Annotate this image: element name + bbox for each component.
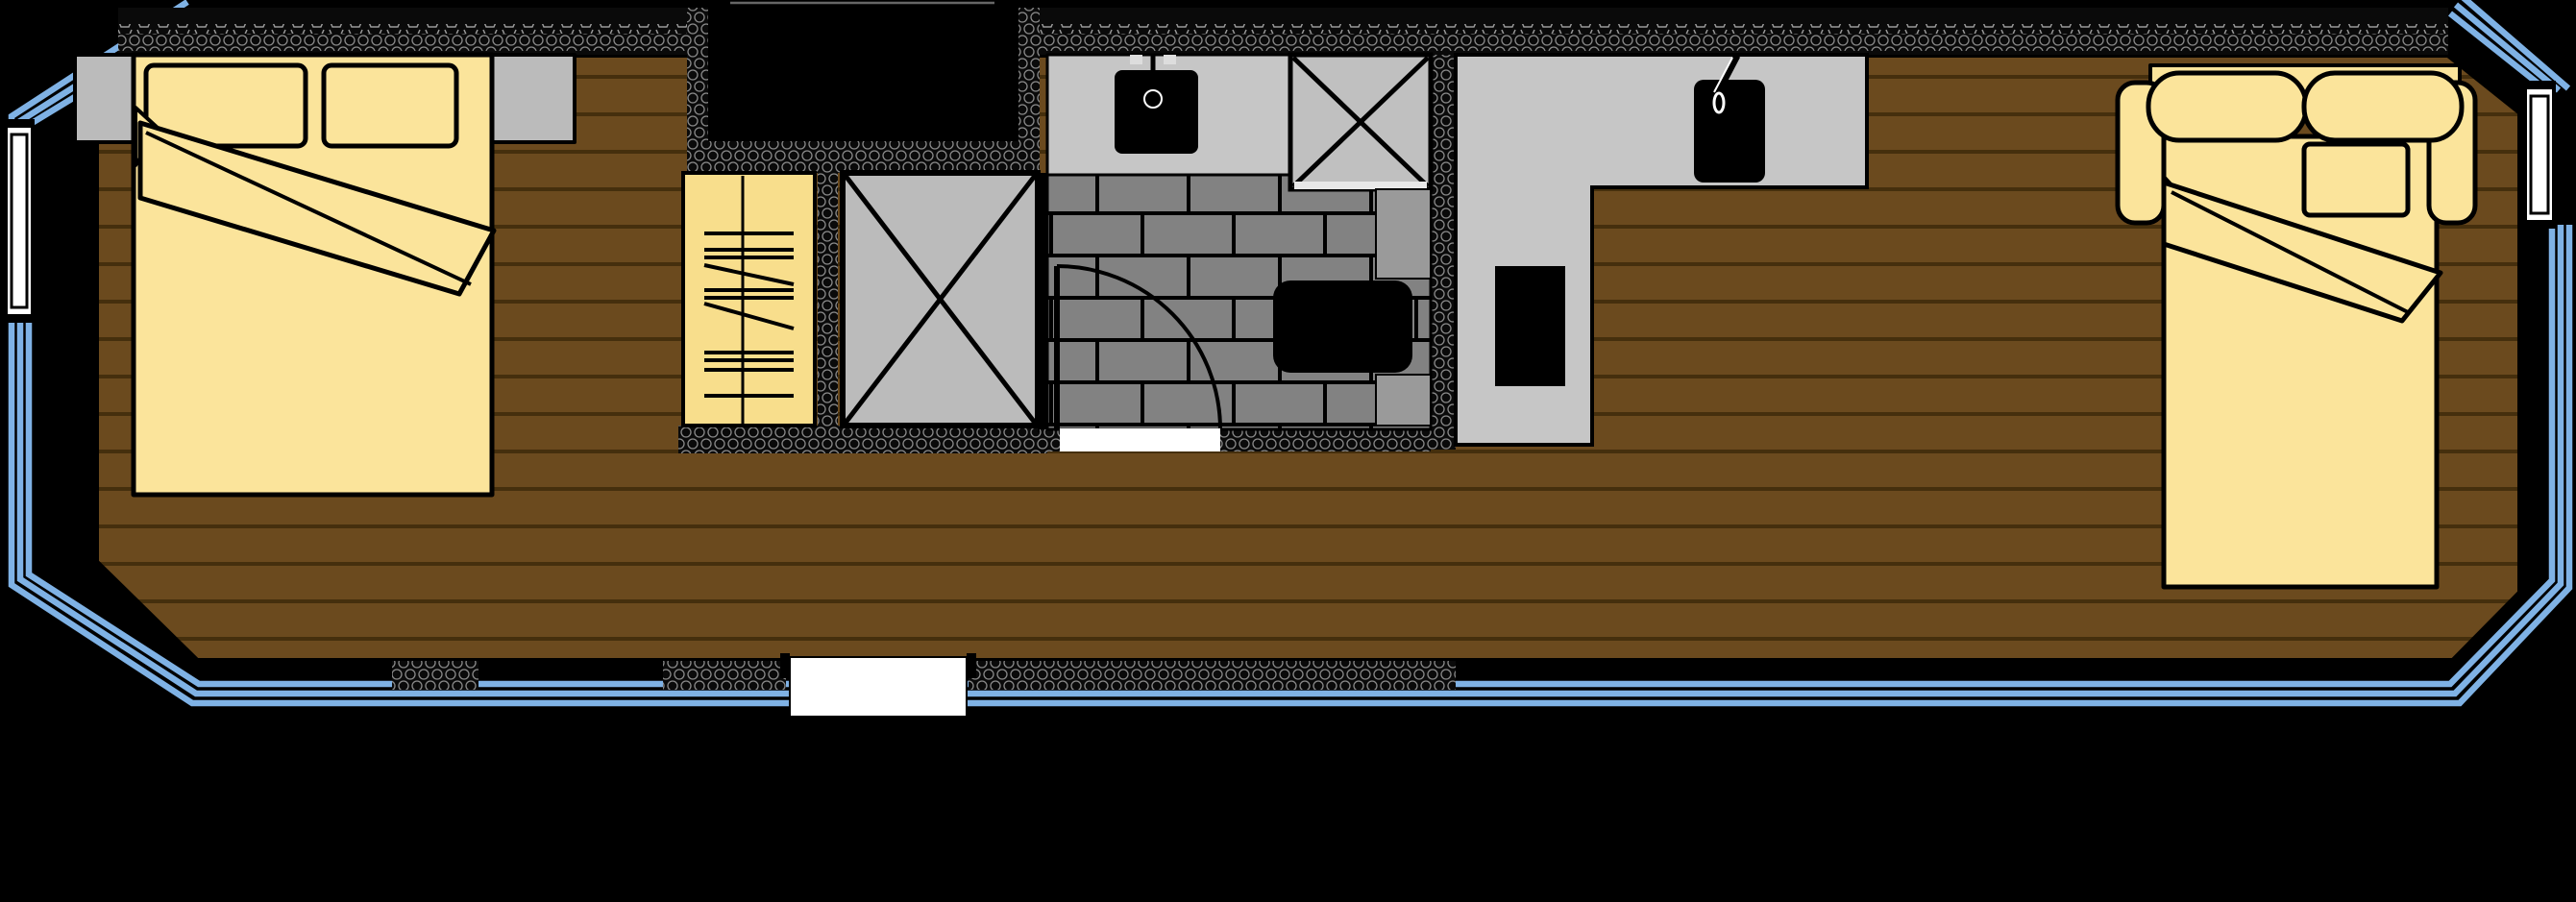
stern-saloon-sofa-bed bbox=[2118, 65, 2475, 587]
cistern-unit-upper bbox=[1376, 189, 1431, 279]
bathroom-door-opening bbox=[1060, 428, 1220, 451]
entrance-step-well bbox=[708, 8, 1018, 141]
narrowboat-floor-plan bbox=[0, 0, 2576, 902]
floor-plan-svg bbox=[0, 0, 2576, 902]
kitchen-cooker bbox=[1495, 266, 1565, 386]
top-wall-left bbox=[118, 8, 687, 55]
cistern-unit-lower bbox=[1376, 375, 1431, 426]
bathroom-shower bbox=[1290, 55, 1431, 189]
bottom-wall-segment-1 bbox=[392, 661, 478, 690]
bottom-wall-segment-3 bbox=[969, 661, 1456, 690]
toilet bbox=[1273, 280, 1412, 373]
top-wall-right bbox=[1040, 8, 2448, 55]
sofa-back-cushion-left bbox=[2148, 73, 2306, 140]
bottom-wall-segment-2 bbox=[663, 661, 786, 690]
bathroom-bottom-wall-left bbox=[1040, 429, 1060, 451]
recess-wall-bottom bbox=[687, 141, 1040, 173]
bottom-door-post-right bbox=[967, 653, 976, 678]
bathroom-basin bbox=[1115, 70, 1198, 154]
bathroom bbox=[1047, 55, 1431, 451]
stern-window bbox=[2523, 81, 2556, 229]
port-bow-window bbox=[4, 119, 35, 323]
bathroom-right-wall bbox=[1431, 55, 1456, 450]
nightstand-left bbox=[75, 55, 134, 142]
wall-under-wardrobe bbox=[678, 426, 1047, 453]
bathroom-bottom-wall-right bbox=[1220, 429, 1431, 451]
sofa-back-cushion-right bbox=[2304, 73, 2462, 140]
crossed-cupboard bbox=[843, 173, 1038, 426]
bottom-side-door bbox=[790, 657, 967, 717]
wardrobe-cupboard-divider-wall bbox=[818, 173, 838, 426]
bottom-door-post-left bbox=[780, 653, 790, 678]
wardrobe bbox=[683, 173, 815, 426]
kitchen-sink bbox=[1694, 80, 1765, 183]
bed-pillow-right bbox=[324, 65, 456, 146]
nightstand-right bbox=[492, 55, 575, 142]
sofa-bed-pillow bbox=[2304, 144, 2408, 215]
